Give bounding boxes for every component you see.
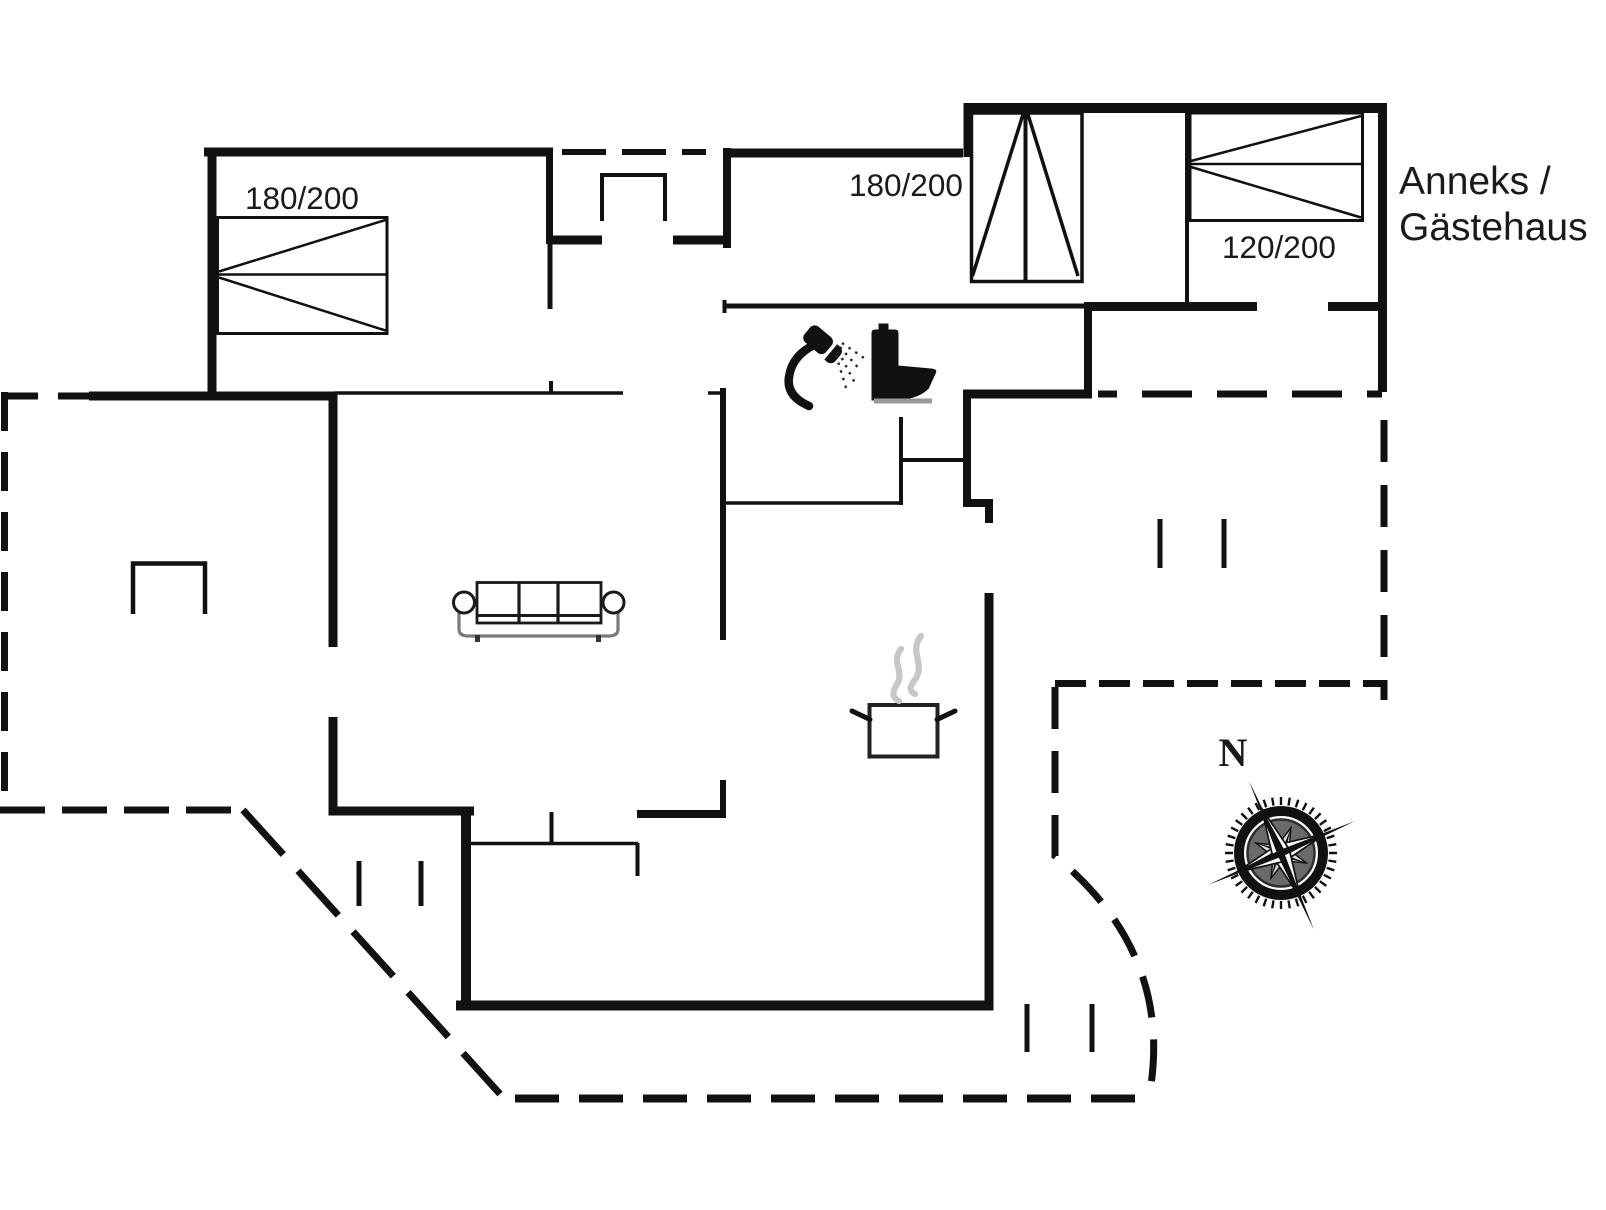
svg-text:120/200: 120/200 [1222, 229, 1336, 265]
svg-text:N: N [1219, 730, 1248, 775]
svg-text:Anneks /: Anneks / [1399, 160, 1551, 203]
svg-text:180/200: 180/200 [849, 167, 963, 203]
svg-text:180/200: 180/200 [245, 180, 359, 216]
svg-text:Gästehaus: Gästehaus [1399, 206, 1588, 249]
